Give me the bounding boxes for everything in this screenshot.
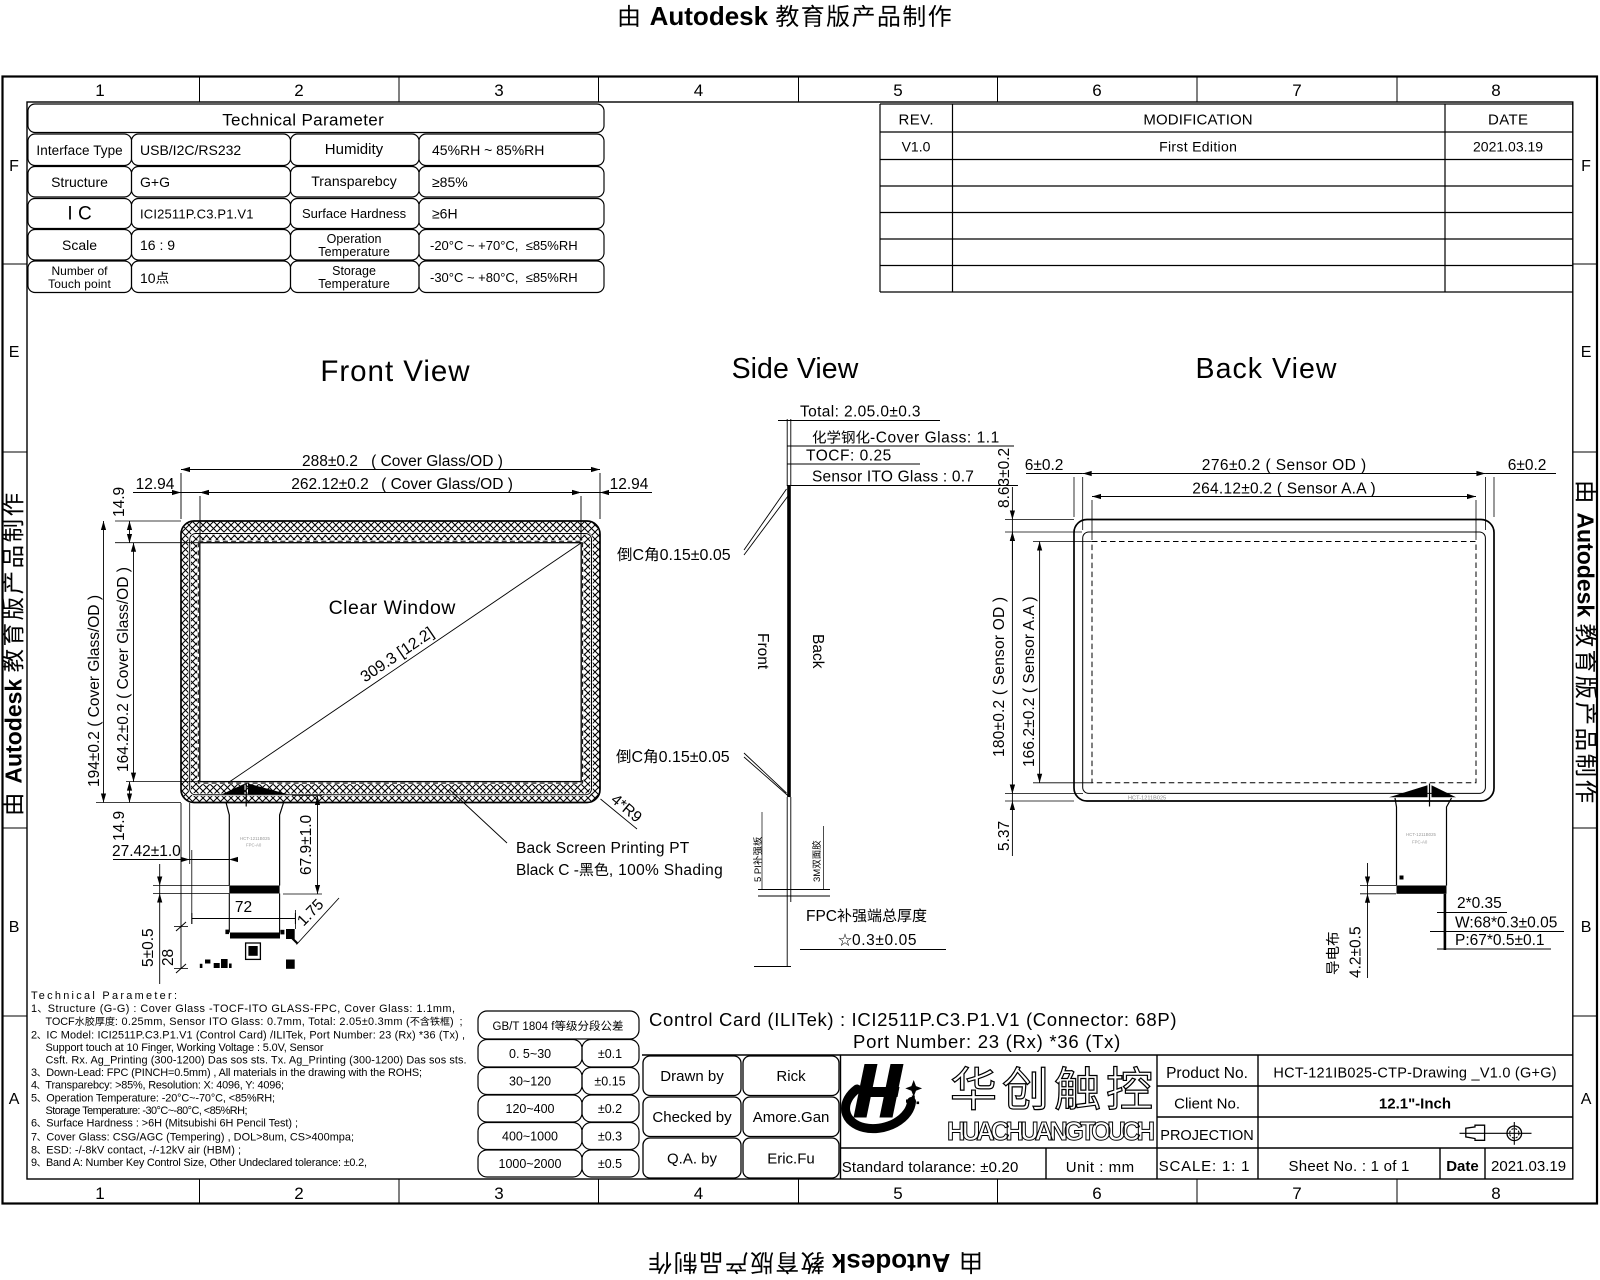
svg-text:Autodesk: Autodesk xyxy=(650,1,769,31)
svg-text:0.15±0.05: 0.15±0.05 xyxy=(660,547,731,564)
svg-text:Down-Lead: FPC (PINCH=0.5mm): Down-Lead: FPC (PINCH=0.5mm) , All mater… xyxy=(46,1067,422,1079)
svg-text:6: 6 xyxy=(31,1118,37,1130)
svg-text:P:67*0.5±0.1: P:67*0.5±0.1 xyxy=(1455,932,1545,949)
svg-text:HUACHUANGTOUCH: HUACHUANGTOUCH xyxy=(947,1118,1155,1146)
svg-text:4.2±0.5: 4.2±0.5 xyxy=(1348,926,1365,978)
svg-text:1: 1 xyxy=(95,1184,104,1203)
svg-text:( Cover Glass/OD ): ( Cover Glass/OD ) xyxy=(381,476,513,493)
svg-text:5±0.5: 5±0.5 xyxy=(140,928,157,967)
svg-text:B: B xyxy=(9,919,20,936)
svg-text:400~1000: 400~1000 xyxy=(502,1130,558,1144)
svg-text:14.9: 14.9 xyxy=(111,487,128,517)
svg-text:≤85%RH: ≤85%RH xyxy=(526,270,578,285)
svg-text:±0.1: ±0.1 xyxy=(598,1047,622,1061)
svg-text:2: 2 xyxy=(294,81,303,100)
svg-text:-Cover Glass: 1.1: -Cover Glass: 1.1 xyxy=(870,430,999,447)
svg-text:HCT-1211B025: HCT-1211B025 xyxy=(1128,796,1166,802)
svg-text:Product No.: Product No. xyxy=(1166,1065,1248,1082)
svg-text:HCT-121IB025-CTP-Drawing _V1.: HCT-121IB025-CTP-Drawing _V1.0 (G+G) xyxy=(1273,1066,1556,1082)
svg-text:Autodesk: Autodesk xyxy=(1,679,27,784)
svg-text:Csft. Rx. Ag_Printing (300-: Csft. Rx. Ag_Printing (300-1200) Das sos… xyxy=(46,1055,467,1067)
svg-text:: 0.25mm, Sensor ITO Glass:: : 0.25mm, Sensor ITO Glass: 0.7mm, Total… xyxy=(115,1016,410,1028)
svg-text:14.9: 14.9 xyxy=(111,811,128,841)
svg-text:HCT-1211B025: HCT-1211B025 xyxy=(1406,832,1437,837)
svg-text:A: A xyxy=(9,1091,20,1108)
svg-text:,: , xyxy=(515,270,519,285)
svg-text:3: 3 xyxy=(31,1067,37,1079)
svg-text:72: 72 xyxy=(235,899,252,916)
svg-text:MODIFICATION: MODIFICATION xyxy=(1143,112,1252,129)
svg-text:2: 2 xyxy=(31,1030,37,1042)
svg-text:±0.3: ±0.3 xyxy=(598,1130,622,1144)
svg-text:GB/T 1804 f: GB/T 1804 f xyxy=(493,1021,556,1033)
svg-text:194±0.2 ( Cover Glass/OD ): 194±0.2 ( Cover Glass/OD ) xyxy=(86,595,103,787)
svg-text:45%RH ~ 85%RH: 45%RH ~ 85%RH xyxy=(432,142,544,158)
svg-text:10: 10 xyxy=(140,270,156,286)
svg-text:Operation Temperature: -20°C~: Operation Temperature: -20°C~-70°C, <85%… xyxy=(46,1093,275,1105)
svg-text:E: E xyxy=(9,344,20,361)
svg-text:Technical Parameter: Technical Parameter xyxy=(222,111,384,130)
svg-text:0.3±0.05: 0.3±0.05 xyxy=(852,932,917,949)
svg-text:2021.03.19: 2021.03.19 xyxy=(1491,1158,1566,1175)
svg-text:Sheet No. : 1 of 1: Sheet No. : 1 of 1 xyxy=(1289,1158,1410,1175)
svg-text:276±0.2 ( Sensor OD ): 276±0.2 ( Sensor OD ) xyxy=(1202,457,1366,474)
svg-text:6±0.2: 6±0.2 xyxy=(1025,457,1064,474)
svg-text:Clear Window: Clear Window xyxy=(329,597,457,619)
svg-text:7: 7 xyxy=(1292,1184,1301,1203)
svg-text:Unit : mm: Unit : mm xyxy=(1066,1159,1134,1176)
svg-text:164.2±0.2 ( Cover Glass/OD ): 164.2±0.2 ( Cover Glass/OD ) xyxy=(115,567,132,772)
svg-text:8: 8 xyxy=(1491,1184,1500,1203)
svg-text:Humidity: Humidity xyxy=(325,141,384,158)
svg-text:Total: 2.05.0±0.3: Total: 2.05.0±0.3 xyxy=(800,404,921,421)
svg-text:12.1"-Inch: 12.1"-Inch xyxy=(1379,1096,1451,1113)
svg-text:F: F xyxy=(9,158,19,175)
svg-text:Support touch at 10 Finger, W: Support touch at 10 Finger, Working Volt… xyxy=(46,1042,324,1054)
svg-text:Autodesk: Autodesk xyxy=(831,1248,950,1278)
svg-text:Storage: Storage xyxy=(332,264,376,278)
svg-text:PROJECTION: PROJECTION xyxy=(1160,1128,1253,1144)
svg-text:-30°C ~ +80°C: -30°C ~ +80°C xyxy=(430,270,515,285)
svg-text:±0.15: ±0.15 xyxy=(594,1075,625,1089)
svg-text:, 100% Shading: , 100% Shading xyxy=(609,862,723,879)
svg-text:I C: I C xyxy=(67,204,91,225)
svg-text:30~120: 30~120 xyxy=(509,1075,551,1089)
svg-text:Number of: Number of xyxy=(52,264,109,278)
svg-text:166.2±0.2 ( Sensor A.A ): 166.2±0.2 ( Sensor A.A ) xyxy=(1021,597,1038,768)
svg-text:≤85%RH: ≤85%RH xyxy=(526,238,578,253)
svg-text:7: 7 xyxy=(1292,81,1301,100)
svg-text:Eric.Fu: Eric.Fu xyxy=(767,1151,815,1168)
svg-text:ESD: -/-8kV contact, -/-12kV: ESD: -/-8kV contact, -/-12kV air (HBM) ; xyxy=(46,1145,241,1157)
svg-text:3M: 3M xyxy=(812,869,823,882)
svg-text:≥6H: ≥6H xyxy=(432,206,458,222)
svg-text:USB/I2C/RS232: USB/I2C/RS232 xyxy=(140,142,241,158)
svg-text:Sensor ITO Glass : 0.7: Sensor ITO Glass : 0.7 xyxy=(812,469,974,486)
svg-text:7: 7 xyxy=(31,1132,37,1144)
svg-text:( Cover Glass/OD ): ( Cover Glass/OD ) xyxy=(371,453,503,470)
svg-text:8: 8 xyxy=(1491,81,1500,100)
svg-text:Standard tolarance: ±0.20: Standard tolarance: ±0.20 xyxy=(842,1159,1019,1176)
svg-text:C: C xyxy=(633,547,645,564)
svg-text:6: 6 xyxy=(1092,1184,1101,1203)
svg-text:Front: Front xyxy=(754,633,771,670)
svg-text:,: , xyxy=(515,238,519,253)
svg-text:Interface Type: Interface Type xyxy=(36,143,122,158)
svg-text:Black C -: Black C - xyxy=(516,862,579,879)
svg-text:4: 4 xyxy=(694,1184,703,1203)
svg-text:Back: Back xyxy=(809,634,826,669)
svg-text:2: 2 xyxy=(294,1184,303,1203)
svg-text:6: 6 xyxy=(1092,81,1101,100)
svg-text:Drawn by: Drawn by xyxy=(660,1068,724,1085)
svg-text:TOCF: 0.25: TOCF: 0.25 xyxy=(806,448,891,465)
svg-text:-20°C ~ +70°C: -20°C ~ +70°C xyxy=(430,238,515,253)
svg-text:264.12±0.2 ( Sensor A.A ): 264.12±0.2 ( Sensor A.A ) xyxy=(1192,481,1375,498)
svg-text:Touch point: Touch point xyxy=(48,277,111,291)
svg-text:±0.5: ±0.5 xyxy=(598,1157,622,1171)
svg-text:5: 5 xyxy=(893,81,902,100)
svg-text:Client No.: Client No. xyxy=(1174,1096,1240,1113)
svg-text:27.42±1.0: 27.42±1.0 xyxy=(112,843,181,860)
svg-text:Back View: Back View xyxy=(1196,353,1337,385)
svg-text:5: 5 xyxy=(893,1184,902,1203)
svg-text:2*0.35: 2*0.35 xyxy=(1457,895,1502,912)
svg-text:W:68*0.3±0.05: W:68*0.3±0.05 xyxy=(1455,915,1557,932)
svg-text:Side View: Side View xyxy=(732,353,859,385)
svg-text:Operation: Operation xyxy=(327,232,382,246)
svg-text:FPC-A0: FPC-A0 xyxy=(1412,840,1428,845)
svg-text:B: B xyxy=(1581,919,1592,936)
svg-text:12.94: 12.94 xyxy=(136,476,175,493)
svg-text:C: C xyxy=(632,749,644,766)
svg-text:8: 8 xyxy=(31,1145,37,1157)
svg-text:E: E xyxy=(1581,344,1592,361)
svg-text:28: 28 xyxy=(160,949,177,966)
svg-text:DATE: DATE xyxy=(1488,112,1528,129)
svg-text:REV.: REV. xyxy=(899,112,934,129)
svg-text:Storage Temperature: -30°C~-8: Storage Temperature: -30°C~-80°C, <85%RH… xyxy=(46,1105,248,1117)
svg-text:Temperature: Temperature xyxy=(318,277,390,291)
svg-text:IC Model: ICI2511P.C3.P1.V1: IC Model: ICI2511P.C3.P1.V1 (Control Car… xyxy=(46,1030,465,1042)
svg-text:Temperature: Temperature xyxy=(318,245,390,259)
svg-text:Rick: Rick xyxy=(776,1068,806,1085)
svg-text:262.12±0.2: 262.12±0.2 xyxy=(291,476,369,493)
svg-text:Amore.Gan: Amore.Gan xyxy=(753,1109,830,1126)
svg-text:5: 5 xyxy=(31,1093,37,1105)
svg-text:Structure (G-G) : Cover Gla: Structure (G-G) : Cover Glass -TOCF-ITO … xyxy=(48,1003,455,1015)
svg-text:16 : 9: 16 : 9 xyxy=(140,237,175,253)
svg-text:12.94: 12.94 xyxy=(610,476,649,493)
svg-text:9: 9 xyxy=(31,1157,37,1169)
svg-text:6±0.2: 6±0.2 xyxy=(1508,457,1547,474)
svg-text:Autodesk: Autodesk xyxy=(1573,512,1599,617)
svg-text:4: 4 xyxy=(31,1080,37,1092)
svg-text:0.15±0.05: 0.15±0.05 xyxy=(659,749,730,766)
svg-text:Surface Hardness: Surface Hardness xyxy=(302,206,407,221)
svg-text:8.63±0.2: 8.63±0.2 xyxy=(996,448,1013,508)
svg-text:≥85%: ≥85% xyxy=(432,174,468,190)
svg-text:288±0.2: 288±0.2 xyxy=(302,453,358,470)
svg-text:FPC: FPC xyxy=(806,908,837,925)
svg-text:Structure: Structure xyxy=(51,174,108,190)
svg-text:HCT-1211B025: HCT-1211B025 xyxy=(240,836,271,841)
svg-text:Cover Glass: CSG/AGC (Temper: Cover Glass: CSG/AGC (Tempering) , DOL>8… xyxy=(46,1132,354,1144)
svg-text:0. 5~30: 0. 5~30 xyxy=(509,1047,551,1061)
svg-text:Front View: Front View xyxy=(320,355,470,388)
svg-text:FPC-A0: FPC-A0 xyxy=(246,843,262,848)
svg-text:5.37: 5.37 xyxy=(996,821,1013,851)
svg-text:Control Card (ILITek) : ICI: Control Card (ILITek) : ICI2511P.C3.P1.V… xyxy=(649,1009,1177,1030)
svg-text:Port Number: 23 (Rx) *36 (: Port Number: 23 (Rx) *36 (Tx) xyxy=(853,1031,1120,1052)
svg-text:1: 1 xyxy=(95,81,104,100)
svg-text:1: 1 xyxy=(31,1003,37,1015)
svg-text:G+G: G+G xyxy=(140,174,170,190)
svg-text:A: A xyxy=(1581,1091,1592,1108)
svg-text:TOCF: TOCF xyxy=(46,1016,76,1028)
svg-text:ICI2511P.C3.P1.V1: ICI2511P.C3.P1.V1 xyxy=(140,207,254,222)
svg-text:Checked by: Checked by xyxy=(652,1109,732,1126)
svg-text:Back Screen Printing PT: Back Screen Printing PT xyxy=(516,840,690,857)
svg-text:F: F xyxy=(1581,158,1591,175)
svg-text:1000~2000: 1000~2000 xyxy=(499,1157,562,1171)
svg-text:First Edition: First Edition xyxy=(1159,139,1237,155)
svg-text:67.9±1.0: 67.9±1.0 xyxy=(298,814,315,875)
svg-text:Q.A. by: Q.A. by xyxy=(667,1151,718,1168)
svg-text:) ;: ) ; xyxy=(450,1016,463,1028)
svg-text:120~400: 120~400 xyxy=(506,1102,555,1116)
svg-text:V1.0: V1.0 xyxy=(902,139,931,155)
svg-text:3: 3 xyxy=(494,81,503,100)
svg-text:Date: Date xyxy=(1446,1158,1479,1175)
svg-text:Band A: Number Key Control Si: Band A: Number Key Control Size, Other U… xyxy=(46,1157,367,1169)
svg-text:SCALE: 1: 1: SCALE: 1: 1 xyxy=(1159,1158,1250,1175)
svg-text:Transparebcy: Transparebcy xyxy=(311,173,397,189)
svg-text:Scale: Scale xyxy=(62,237,97,253)
svg-text:±0.2: ±0.2 xyxy=(598,1102,622,1116)
svg-text:4: 4 xyxy=(694,81,703,100)
svg-text:3: 3 xyxy=(494,1184,503,1203)
svg-text:180±0.2 ( Sensor OD ): 180±0.2 ( Sensor OD ) xyxy=(991,597,1008,757)
svg-text:Surface Hardness : >6H (Mits: Surface Hardness : >6H (Mitsubishi 6H Pe… xyxy=(46,1118,298,1130)
svg-text:Transparebcy: >85%, Resoluti: Transparebcy: >85%, Resolution: X: 4096,… xyxy=(45,1080,284,1092)
svg-text:2021.03.19: 2021.03.19 xyxy=(1473,139,1543,155)
